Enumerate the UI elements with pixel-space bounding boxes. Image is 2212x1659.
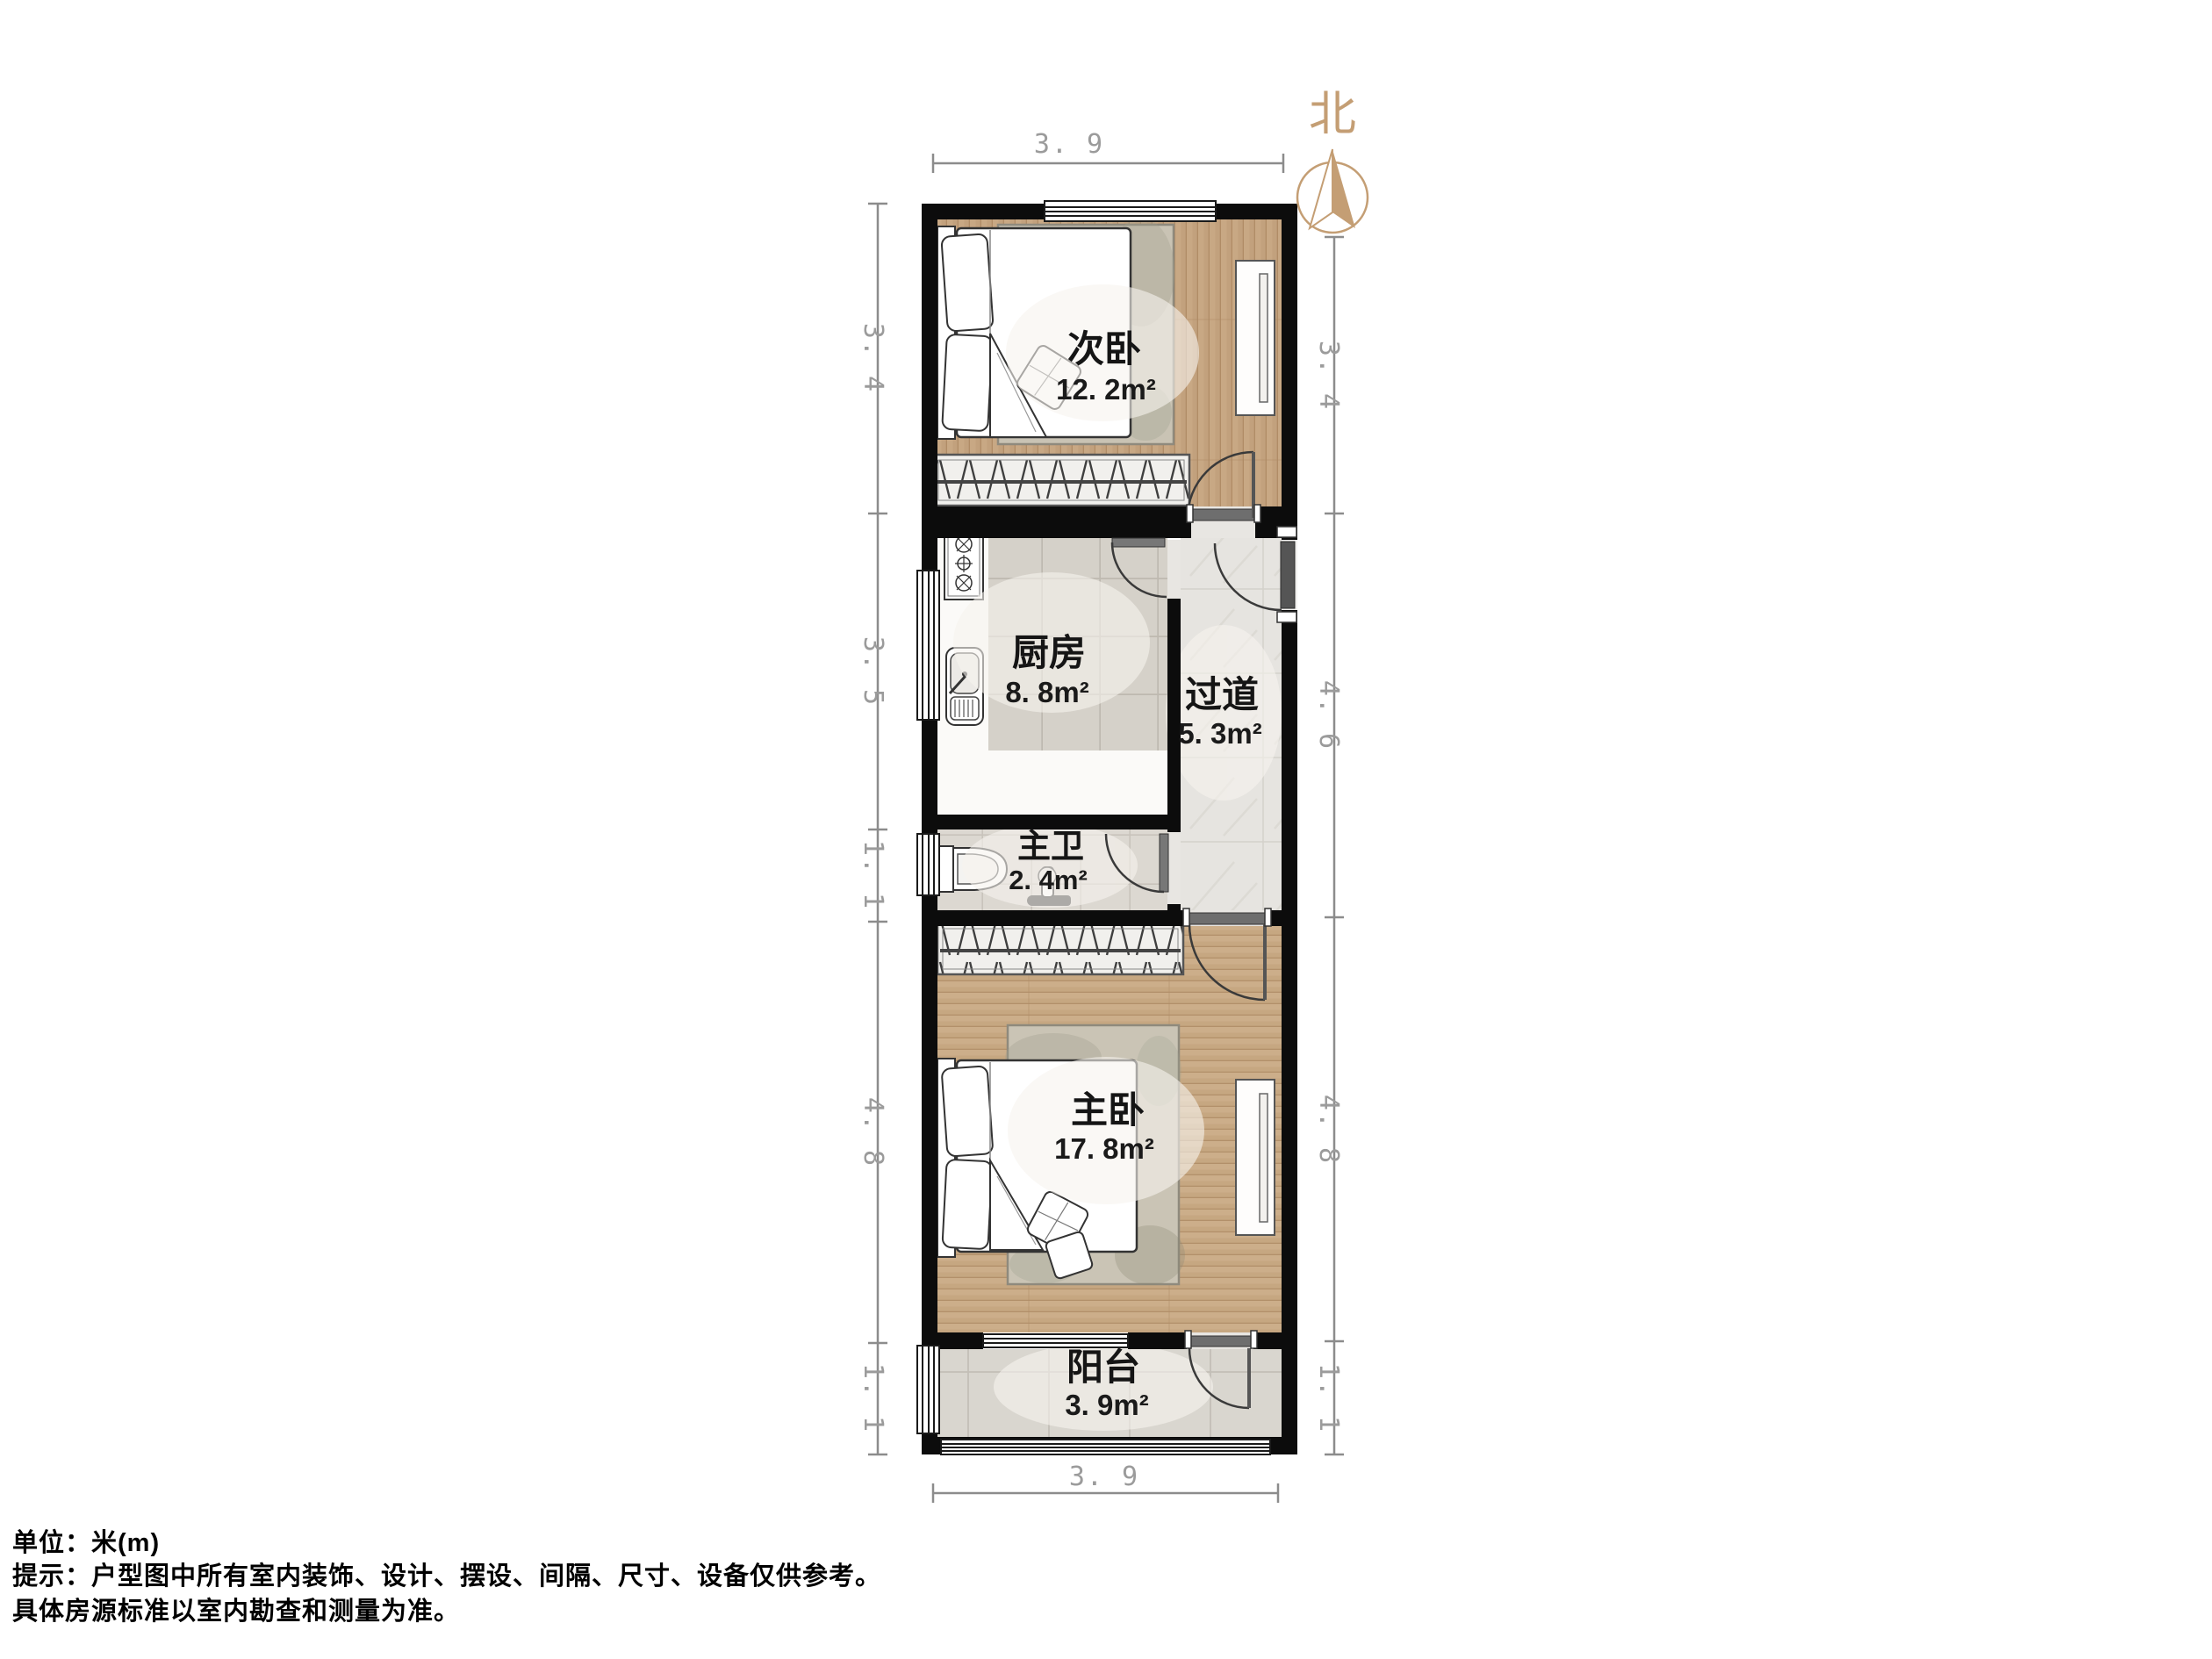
wall-kitchen-bath (937, 815, 1167, 829)
cabinet-secondary (1236, 261, 1275, 415)
dim-bottom: 3. 9 (933, 1461, 1278, 1503)
room-area-bathroom: 2. 4m² (1009, 865, 1088, 895)
room-label-master-bedroom: 主卧 (1071, 1089, 1145, 1131)
dim-right-3: 1. 1 (1313, 1363, 1344, 1433)
footer-tip: 提示：户型图中所有室内装饰、设计、摆设、间隔、尺寸、设备仅供参考。 (12, 1555, 881, 1592)
wall-right (1282, 204, 1297, 1454)
room-area-master-bedroom: 17. 8m² (1054, 1132, 1154, 1165)
room-label-secondary-bedroom: 次卧 (1067, 328, 1141, 370)
room-label-balcony: 阳台 (1066, 1347, 1140, 1388)
dim-left-0: 3. 4 (858, 323, 888, 393)
dim-right-2: 4. 8 (1313, 1095, 1344, 1165)
north-label: 北 (1309, 88, 1356, 140)
dim-left-3: 4. 8 (858, 1097, 888, 1167)
wall-c1 (937, 1332, 983, 1349)
wall-kitchen-hall-1 (1167, 599, 1181, 832)
wardrobe-secondary (933, 455, 1189, 506)
wall-left (922, 204, 937, 1454)
dim-bottom-label: 3. 9 (1069, 1461, 1139, 1492)
wall-c3 (1253, 1332, 1282, 1349)
wardrobe-master (937, 923, 1183, 974)
window-balcony-inner (983, 1334, 1128, 1347)
window-left-bathroom (917, 834, 939, 895)
window-left-balcony (917, 1346, 939, 1433)
stove (944, 528, 983, 600)
wall-a1 (937, 506, 1191, 538)
window-left-kitchen (917, 571, 939, 720)
dim-left-4: 1. 1 (858, 1363, 888, 1433)
dim-right-1: 4. 6 (1313, 680, 1344, 750)
room-label-hallway: 过道 (1185, 674, 1259, 715)
wall-b1 (937, 910, 1188, 926)
cabinet-master (1236, 1080, 1275, 1235)
dim-left: 3. 4 3. 5 1. 1 4. 8 1. 1 (858, 204, 888, 1454)
room-label-bathroom: 主卫 (1017, 829, 1084, 865)
dim-left-1: 3. 5 (858, 636, 888, 707)
floor-plan-page: 次卧 12. 2m² 厨房 8. 8m² 过道 5. 3m² 主卫 2. 4m²… (0, 0, 2212, 1659)
floor-plan: 次卧 12. 2m² 厨房 8. 8m² 过道 5. 3m² 主卫 2. 4m²… (0, 0, 2212, 1659)
room-area-hallway: 5. 3m² (1178, 717, 1261, 750)
room-label-kitchen: 厨房 (1012, 632, 1086, 673)
wall-kitchen-hall-2 (1167, 904, 1181, 910)
dim-left-2: 1. 1 (858, 840, 888, 910)
footer-note: 具体房源标准以室内勘查和测量为准。 (12, 1591, 460, 1627)
compass-icon (1297, 149, 1368, 233)
window-bottom (941, 1440, 1270, 1454)
dim-right-0: 3. 4 (1313, 341, 1344, 411)
north-indicator: 北 (1297, 88, 1368, 233)
dim-right: 3. 4 4. 6 4. 8 1. 1 (1313, 237, 1344, 1454)
footer-unit: 单位：米(m) (12, 1522, 160, 1559)
window-top (1045, 201, 1216, 221)
dim-top-label: 3. 9 (1034, 129, 1104, 160)
room-area-kitchen: 8. 8m² (1005, 676, 1088, 708)
dim-top: 3. 9 (933, 129, 1283, 173)
room-area-secondary-bedroom: 12. 2m² (1056, 373, 1156, 406)
room-area-balcony: 3. 9m² (1065, 1389, 1148, 1421)
